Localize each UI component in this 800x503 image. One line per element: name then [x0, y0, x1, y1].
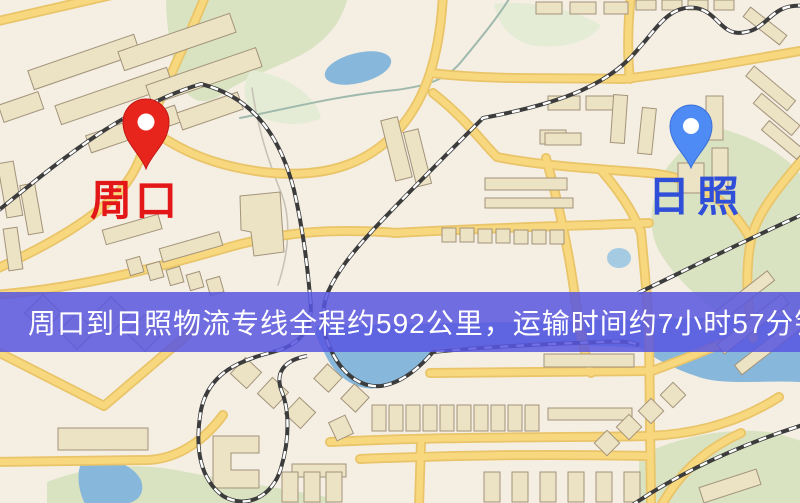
- pond: [607, 248, 631, 268]
- logistics-route-map[interactable]: 周口 日照 周口到日照物流专线全程约592公里，运输时间约7小时57分钟.: [0, 0, 800, 503]
- route-info-banner: 周口到日照物流专线全程约592公里，运输时间约7小时57分钟.: [0, 292, 800, 352]
- origin-marker-icon[interactable]: [118, 96, 174, 172]
- map-canvas[interactable]: [0, 0, 800, 503]
- origin-label: 周口: [90, 180, 180, 222]
- route-info-text: 周口到日照物流专线全程约592公里，运输时间约7小时57分钟.: [0, 302, 800, 342]
- destination-label: 日照: [648, 176, 746, 218]
- destination-marker-icon[interactable]: [665, 102, 717, 170]
